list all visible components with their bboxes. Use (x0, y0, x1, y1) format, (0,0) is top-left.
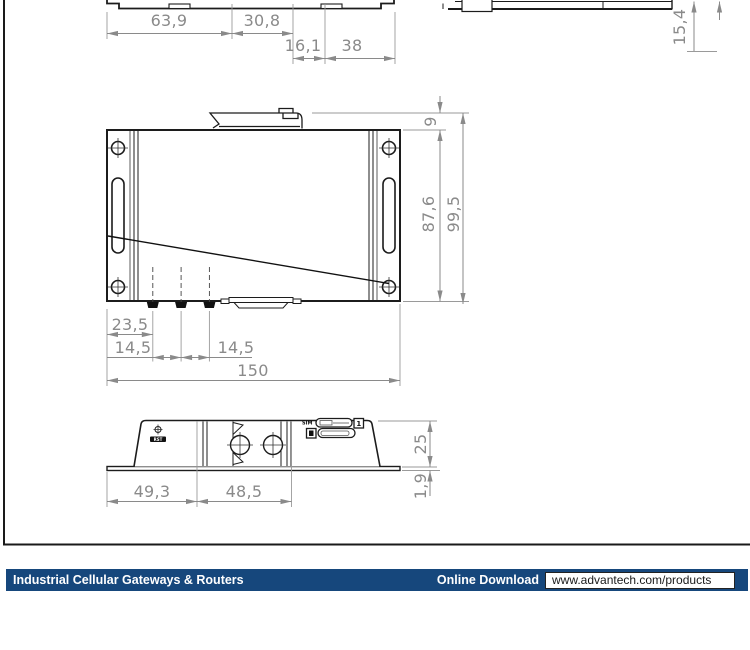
dim-bottom-left: 49,3 (134, 482, 171, 501)
view-bottom-panel: RST SIM 1 (107, 419, 440, 508)
dsub-connector (221, 298, 301, 309)
footer-download-area: Online Download www.advantech.com/produc… (437, 569, 748, 591)
slot-right (383, 178, 395, 253)
sim-slot-2 (318, 429, 355, 438)
sim-label: SIM (302, 421, 312, 427)
footer-category-label: Industrial Cellular Gateways & Routers (13, 573, 244, 587)
dim-ant-pitch-2: 14,5 (218, 338, 255, 357)
dim-clip-protrusion: 9 (421, 116, 440, 126)
dim-total-width: 150 (237, 361, 268, 380)
dim-top-width-mid: 30,8 (244, 11, 281, 30)
reset-label: RST (154, 437, 163, 442)
dim-total-height: 99,5 (444, 196, 463, 233)
din-rail-clip (210, 109, 302, 129)
slot-left (112, 178, 124, 253)
dim-bottom-height: 25 (411, 434, 430, 455)
dim-bottom-clip-width: 48,5 (226, 482, 263, 501)
dim-top-offset: 16,1 (285, 36, 322, 55)
dim-side-height: 15,4 (670, 9, 689, 46)
dim-top-width-right: 38 (342, 36, 363, 55)
view-top-profile: 63,9 30,8 16,1 38 (107, 0, 395, 64)
dim-body-height: 87,6 (419, 196, 438, 233)
view-side-profile: 15,4 (443, 0, 720, 52)
sim-slot-number: 1 (356, 420, 361, 428)
dim-plate-thickness: 1,9 (411, 473, 430, 499)
footer-download-label: Online Download (437, 573, 539, 587)
footer-url-box[interactable]: www.advantech.com/products (545, 572, 735, 589)
sim-slots: SIM 1 (302, 419, 364, 439)
footer-bar: Industrial Cellular Gateways & Routers O… (6, 569, 748, 591)
dimension-drawing: 63,9 30,8 16,1 38 15,4 (0, 0, 750, 650)
footer-url-text[interactable]: www.advantech.com/products (552, 573, 711, 587)
dim-ant-pitch-1: 14,5 (115, 338, 152, 357)
dim-top-width-left: 63,9 (151, 11, 188, 30)
dim-ant-offset: 23,5 (112, 315, 149, 334)
view-front: 9 87,6 99,5 23,5 14,5 14,5 150 (107, 96, 469, 386)
